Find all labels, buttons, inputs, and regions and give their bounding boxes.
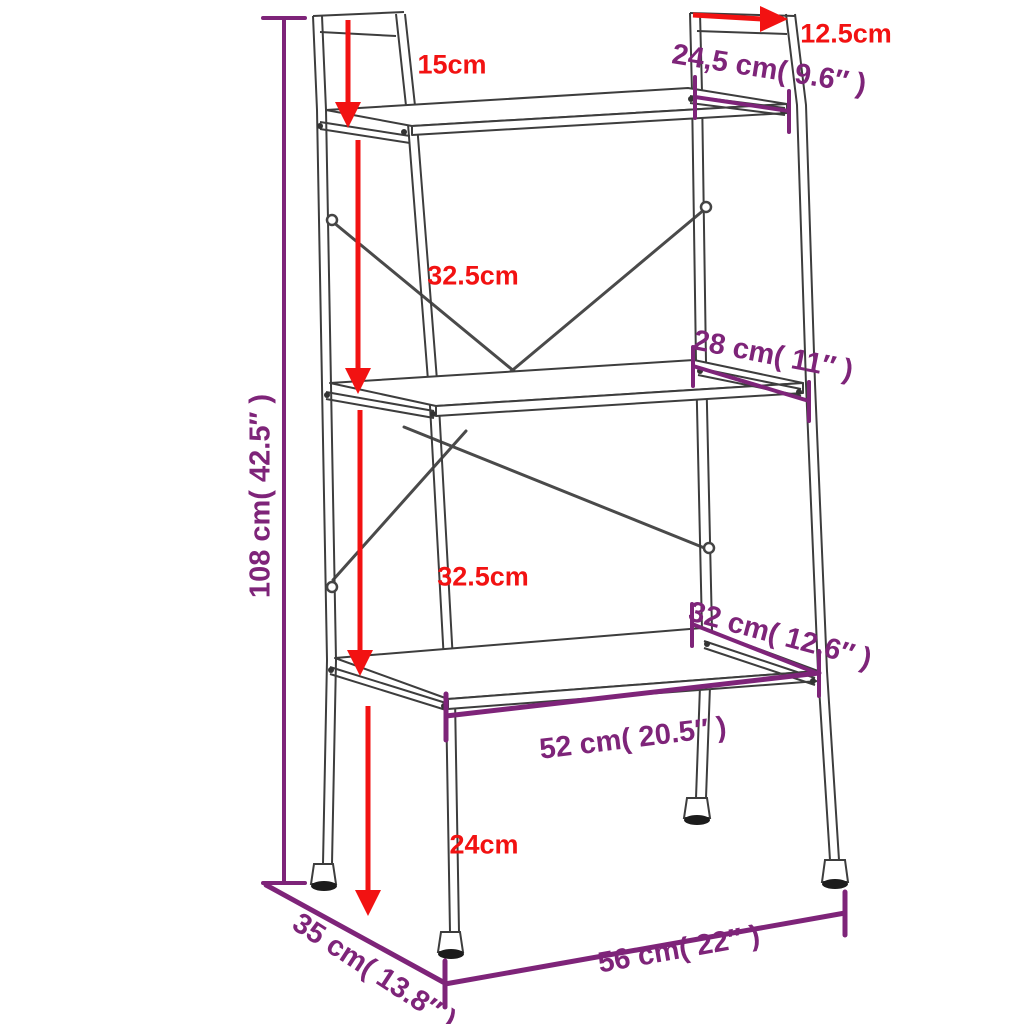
- dim-label-lower-tier-spacing: 32.5cm: [437, 564, 529, 591]
- top-shelf: [320, 88, 787, 143]
- feet: [311, 798, 848, 959]
- shelf-frame: [313, 12, 839, 932]
- dim-label-top-frame-height: 15cm: [417, 52, 486, 79]
- back-left-leg: [313, 16, 327, 864]
- dim-label-leg-height: 24cm: [449, 832, 518, 859]
- diagram-canvas: 15cm 12.5cm 24,5 cm( 9.6″ ) 32.5cm 28 cm…: [0, 0, 1024, 1024]
- dim-label-total-height: 108 cm( 42.5″ ): [247, 394, 276, 598]
- dim-label-top-rail-length: 12.5cm: [800, 21, 892, 48]
- arrow-top-rail-length: [693, 6, 788, 32]
- arrow-leg-height: [355, 706, 381, 916]
- dim-label-upper-tier-spacing: 32.5cm: [427, 263, 519, 290]
- arrow-lower-tier-spacing: [347, 410, 373, 676]
- ladder-shelf-line-drawing: [0, 0, 1024, 1024]
- purple-dimension-lines: [263, 18, 845, 1007]
- arrow-upper-tier-spacing: [345, 140, 371, 394]
- left-top-bar: [313, 12, 404, 16]
- middle-shelf: [326, 360, 803, 418]
